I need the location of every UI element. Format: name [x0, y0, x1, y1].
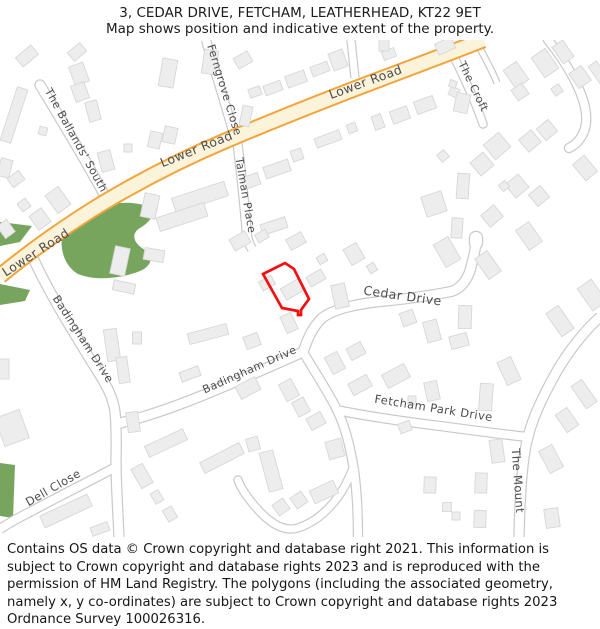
green-area [0, 463, 15, 518]
building-footprint [443, 503, 452, 512]
building-footprint [124, 144, 132, 152]
building-footprint [456, 173, 470, 199]
copyright-notice: Contains OS data © Crown copyright and d… [0, 537, 600, 629]
map-canvas: Lower RoadLower RoadLower RoadThe Ballan… [0, 40, 600, 537]
building-footprint [475, 473, 488, 493]
building-footprint [479, 383, 494, 411]
building-footprint [162, 126, 178, 144]
header: 3, CEDAR DRIVE, FETCHAM, LEATHERHEAD, KT… [0, 0, 600, 40]
building-footprint [133, 332, 142, 344]
building-footprint [489, 439, 505, 464]
building-footprint [474, 510, 487, 527]
building-footprint [544, 508, 561, 529]
map-container: Lower RoadLower RoadLower RoadThe Ballan… [0, 40, 600, 537]
building-footprint [126, 411, 141, 432]
building-footprint [451, 218, 463, 239]
road-north-side-road [351, 40, 355, 78]
building-footprint [38, 126, 48, 136]
building-footprint [458, 305, 472, 328]
building-footprint [379, 40, 389, 51]
building-footprint [452, 512, 460, 520]
building-footprint [0, 359, 9, 379]
page-subtitle: Map shows position and indicative extent… [0, 21, 600, 38]
building-footprint [424, 477, 437, 493]
page-title: 3, CEDAR DRIVE, FETCHAM, LEATHERHEAD, KT… [0, 5, 600, 21]
